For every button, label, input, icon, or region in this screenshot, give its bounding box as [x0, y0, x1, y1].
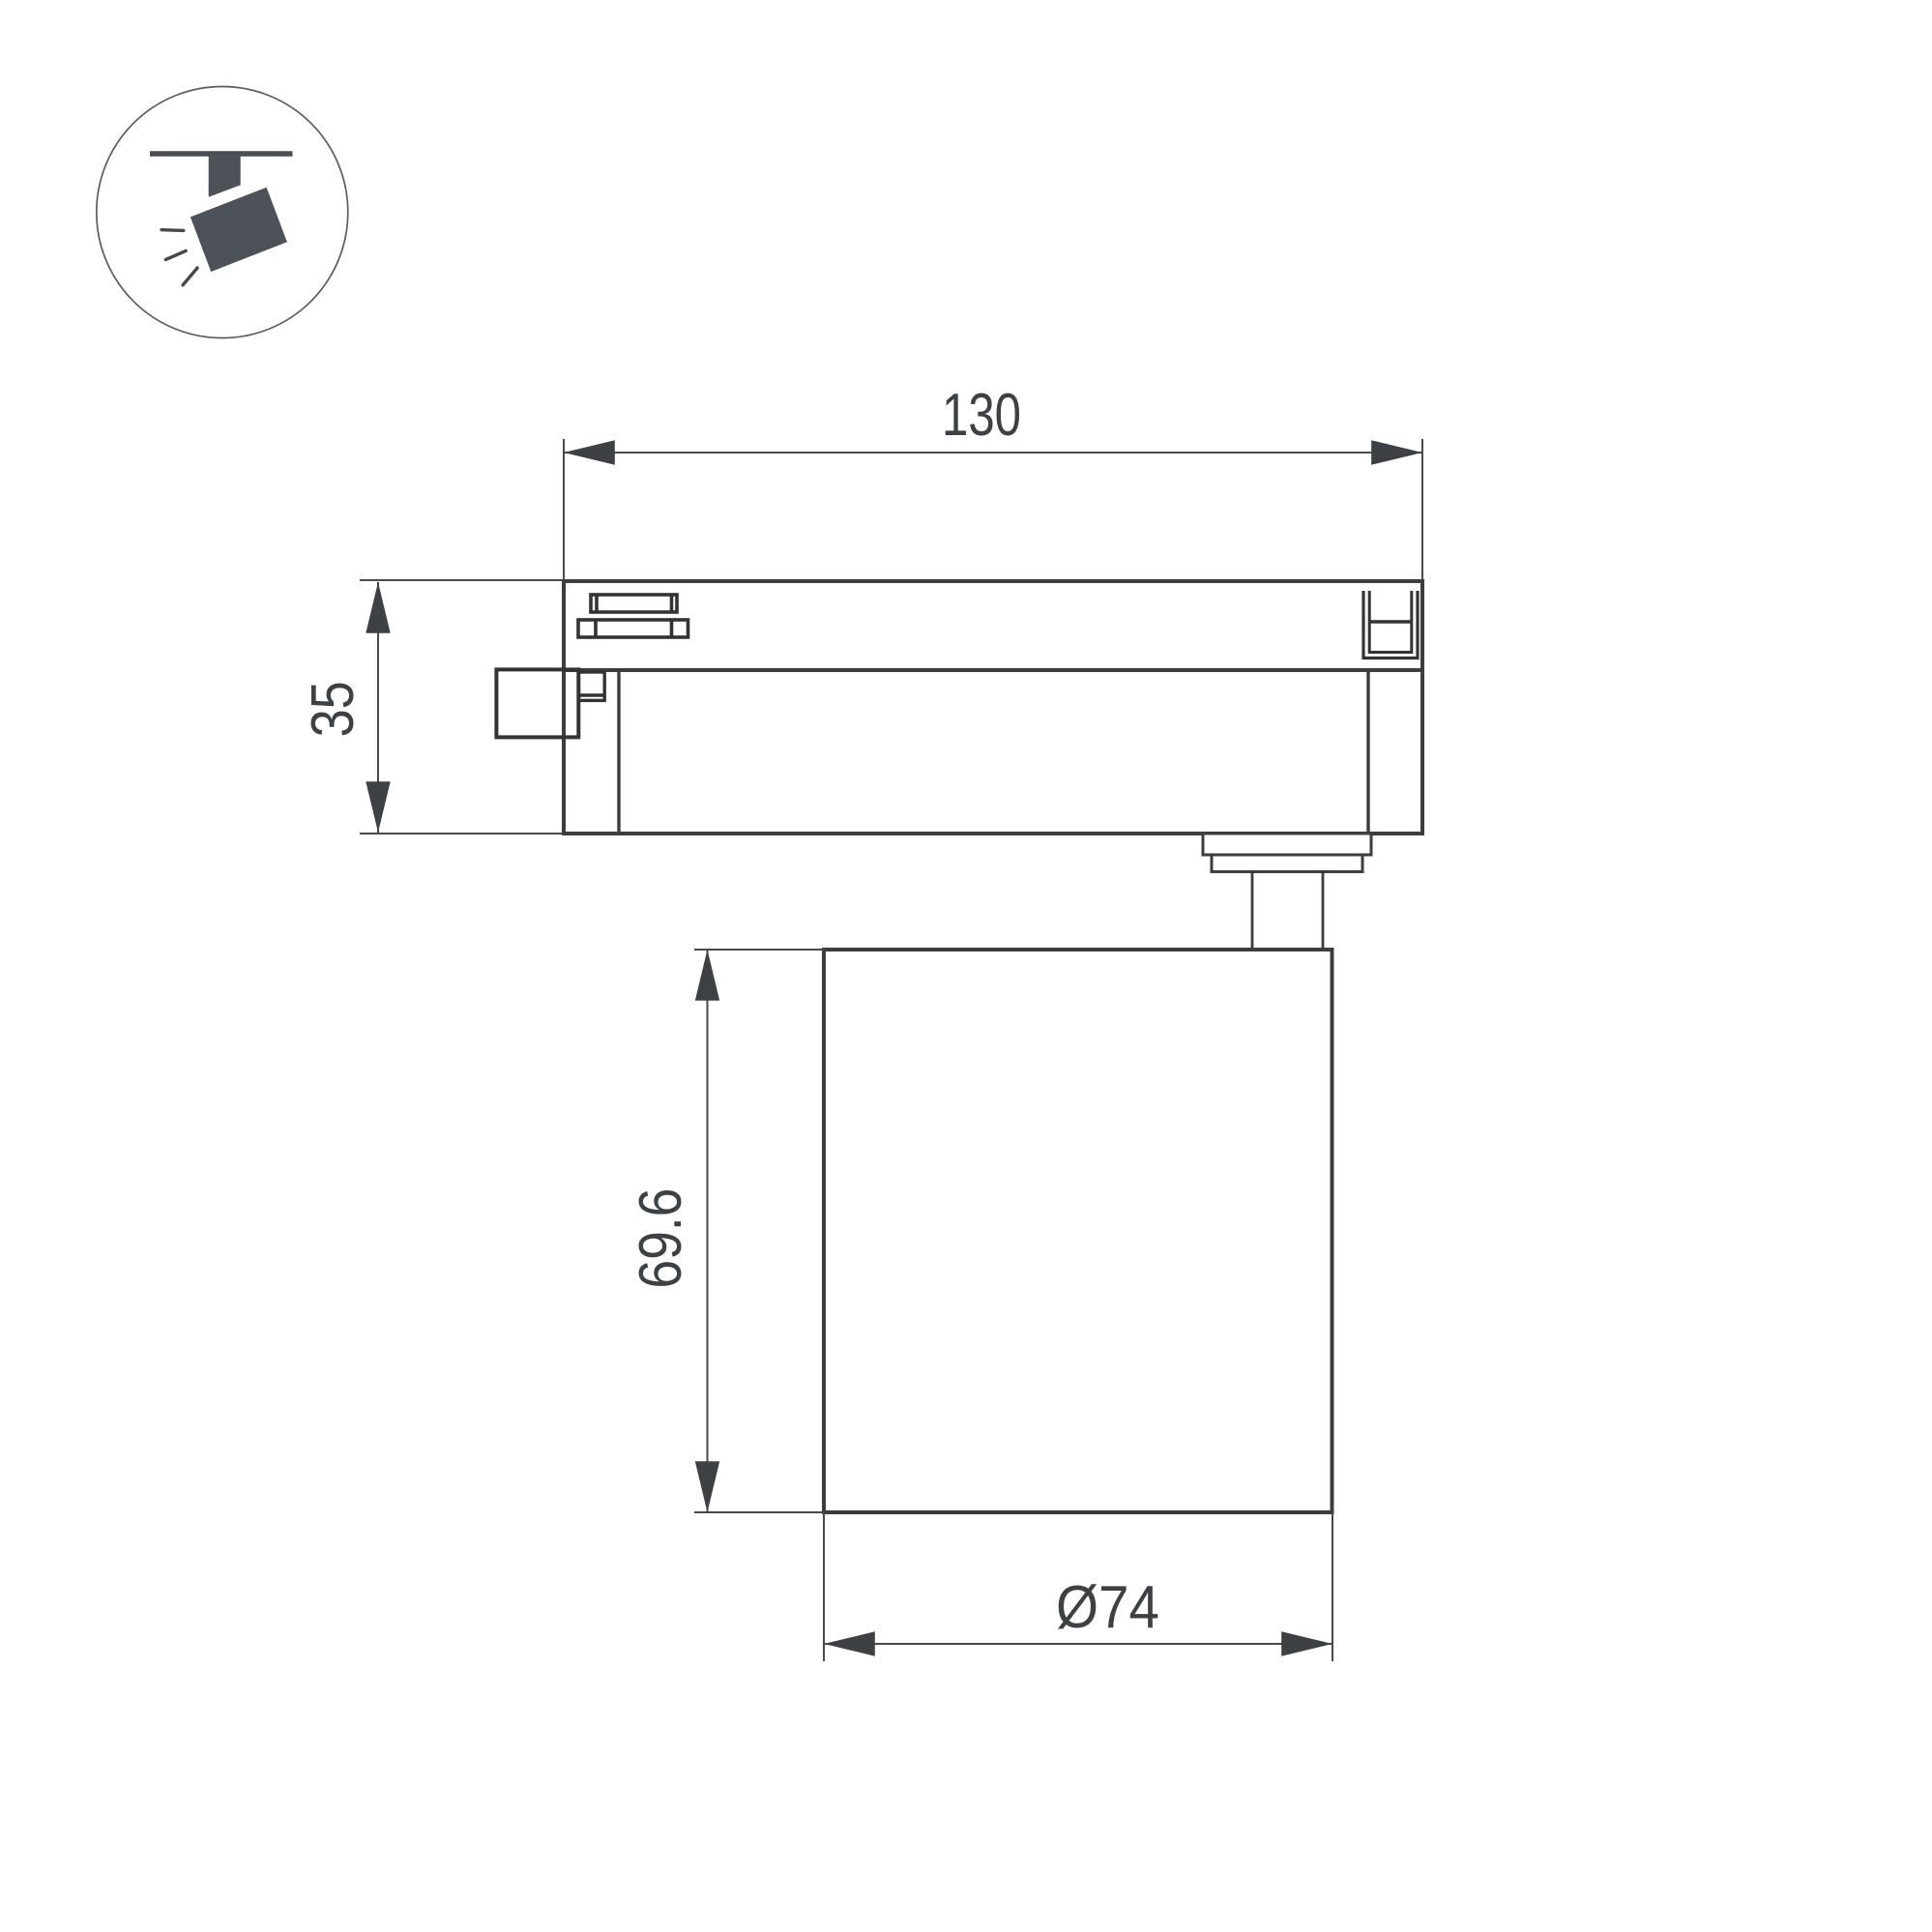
svg-text:130: 130 [942, 382, 1021, 449]
svg-text:69.6: 69.6 [628, 1188, 694, 1289]
svg-text:Ø74: Ø74 [1056, 1574, 1159, 1641]
svg-text:35: 35 [300, 681, 366, 737]
